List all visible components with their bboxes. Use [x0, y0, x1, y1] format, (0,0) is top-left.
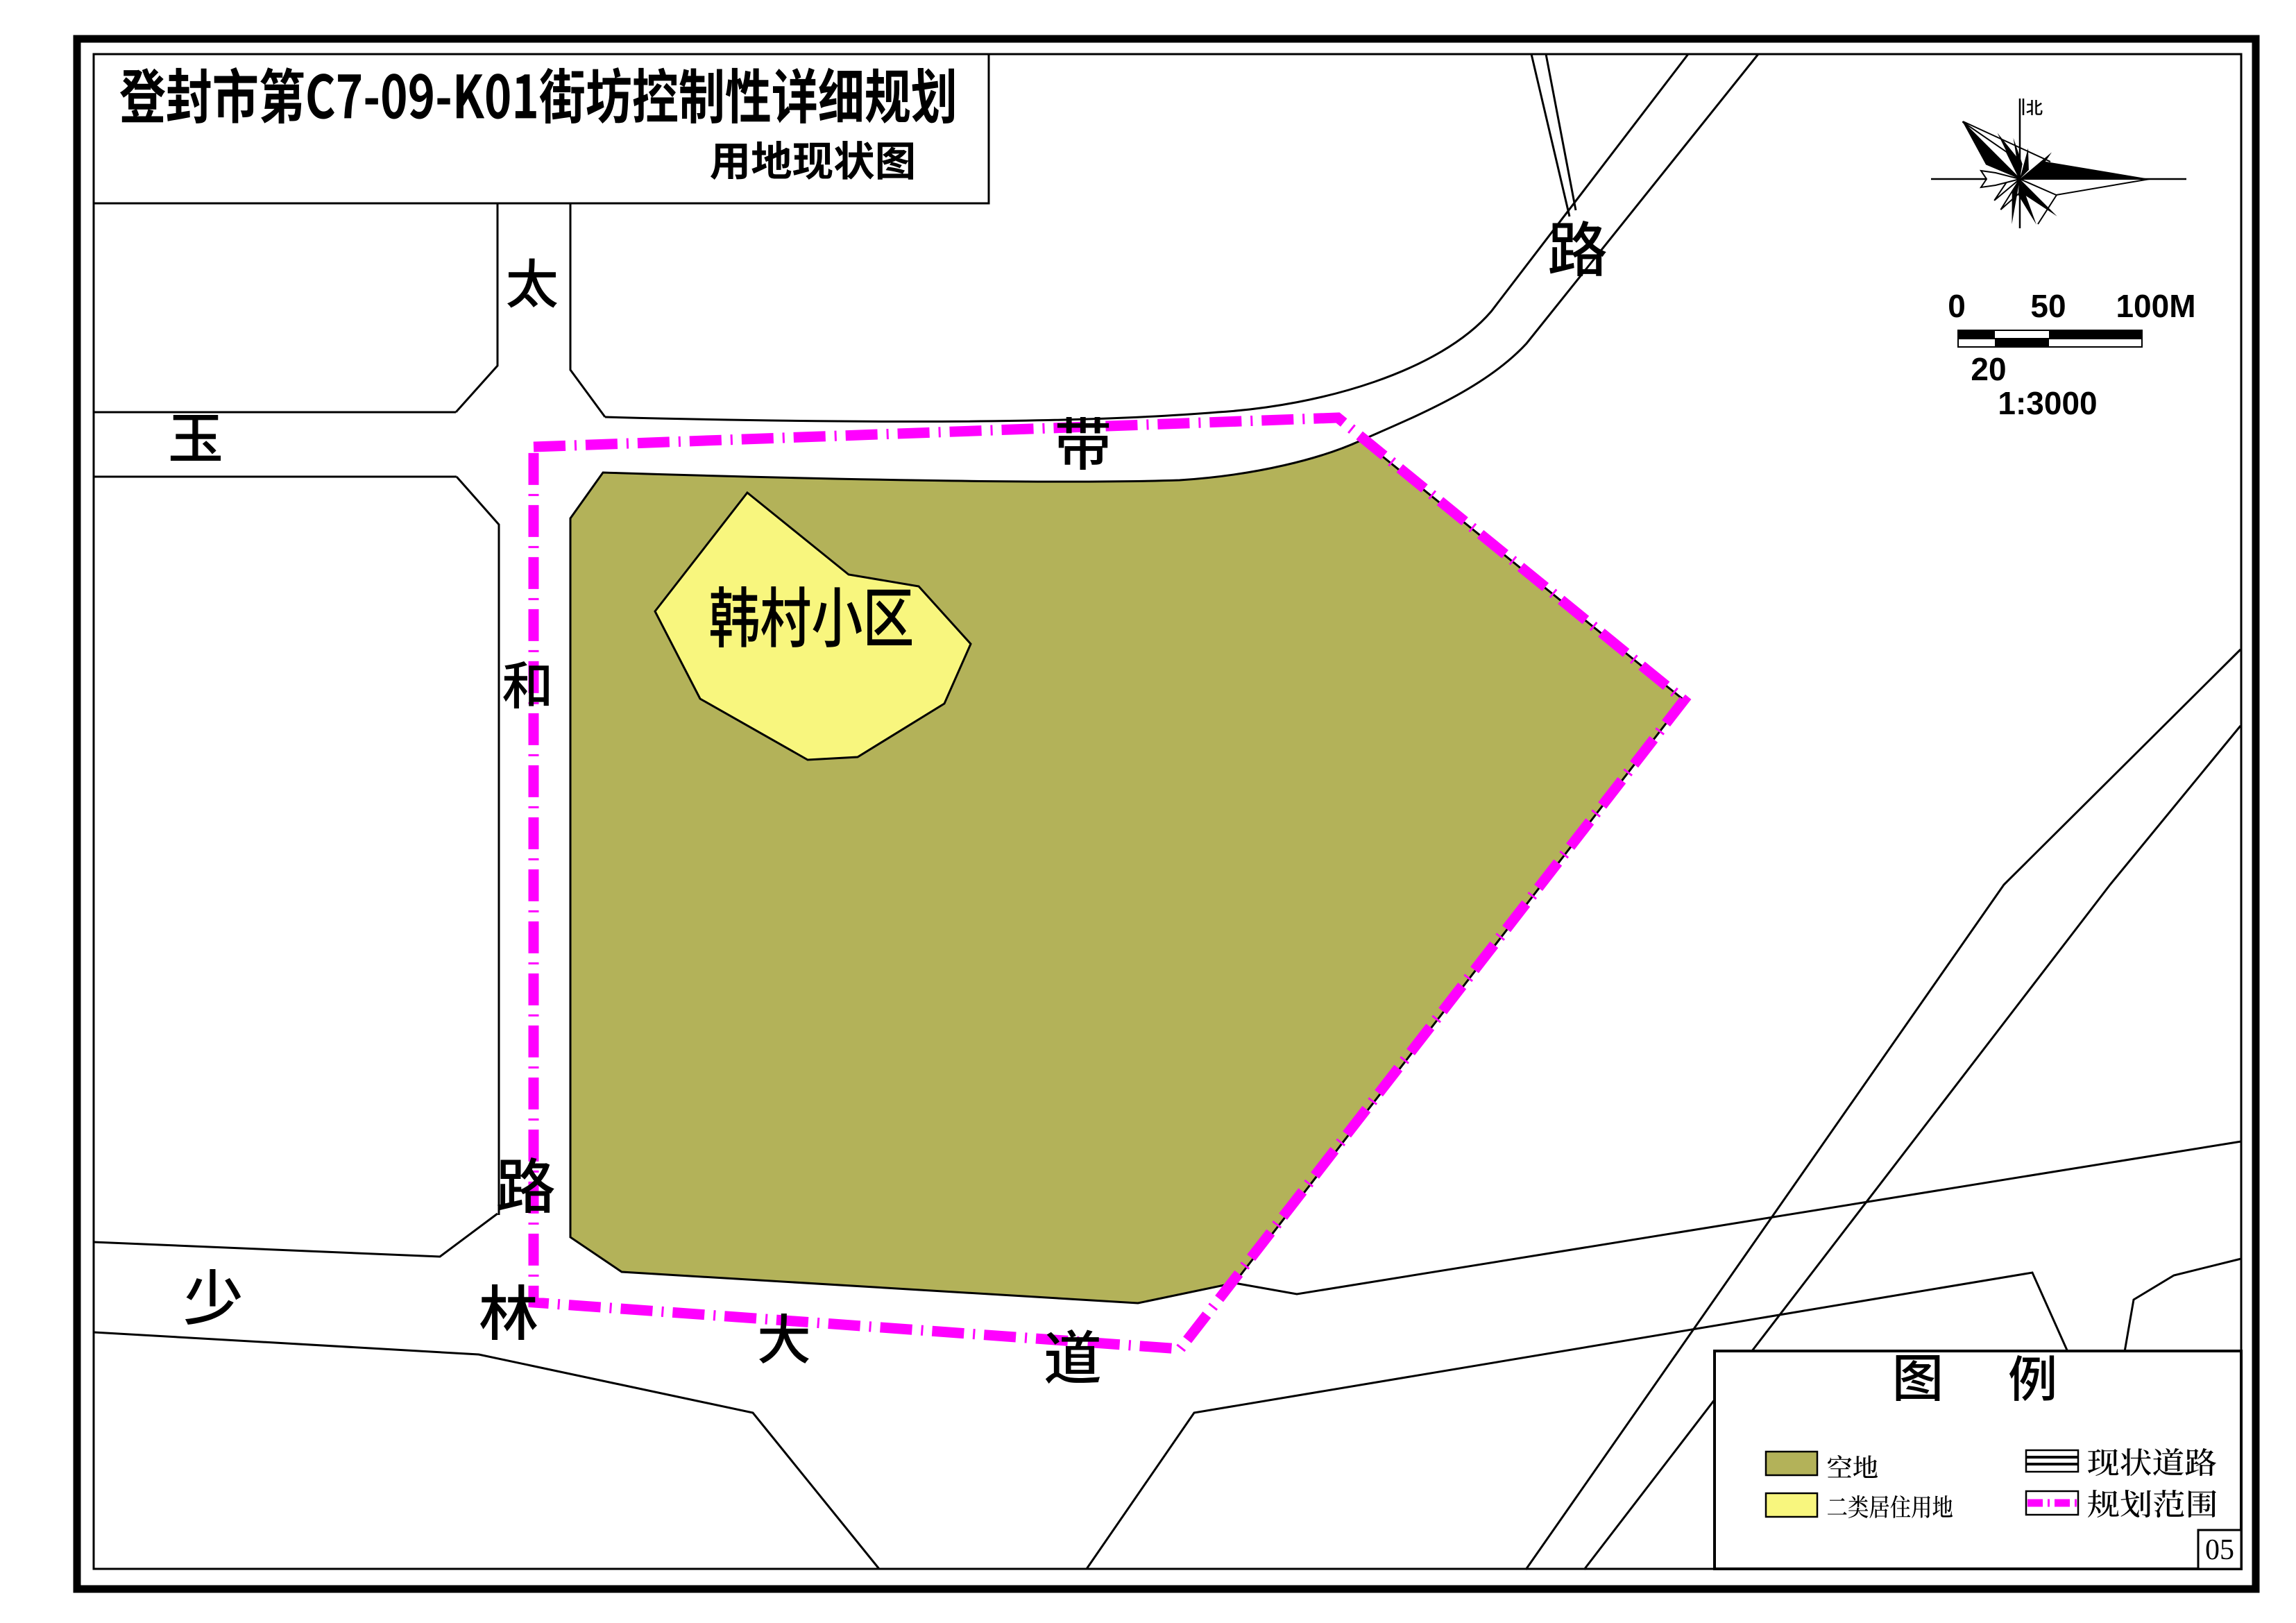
- svg-text:50: 50: [2030, 288, 2066, 324]
- svg-text:1:3000: 1:3000: [1998, 385, 2097, 421]
- svg-text:0: 0: [1948, 288, 1966, 324]
- svg-text:05: 05: [2205, 1534, 2234, 1566]
- svg-text:100M: 100M: [2116, 288, 2195, 324]
- svg-text:20: 20: [1971, 351, 2006, 387]
